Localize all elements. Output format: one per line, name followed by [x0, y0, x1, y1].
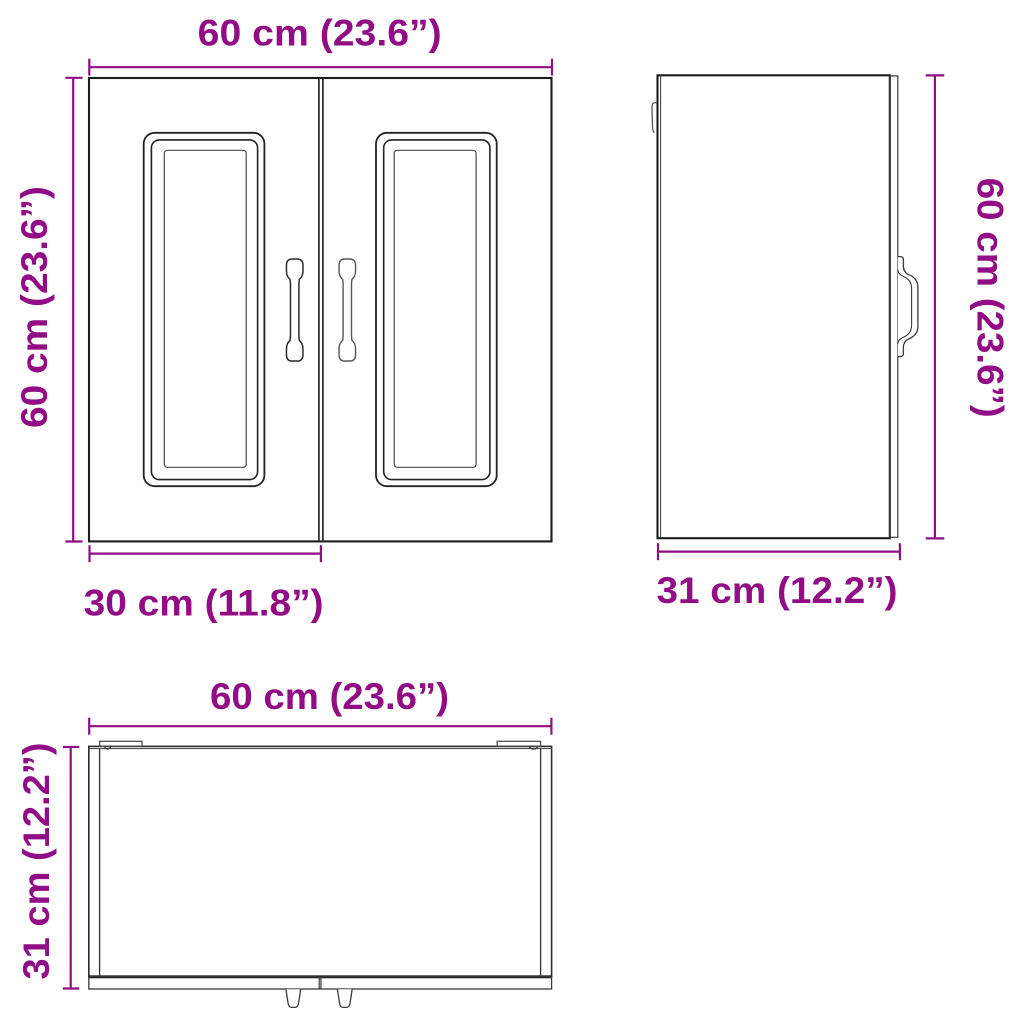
svg-text:60 cm (23.6”): 60 cm (23.6”): [198, 11, 442, 53]
svg-text:31 cm (12.2”): 31 cm (12.2”): [657, 569, 898, 611]
svg-text:60 cm (23.6”): 60 cm (23.6”): [210, 675, 449, 717]
svg-text:31 cm (12.2”): 31 cm (12.2”): [15, 743, 57, 980]
svg-text:60 cm (23.6”): 60 cm (23.6”): [13, 186, 55, 428]
svg-text:60 cm (23.6”): 60 cm (23.6”): [970, 178, 1012, 418]
svg-text:30 cm (11.8”): 30 cm (11.8”): [84, 582, 324, 624]
